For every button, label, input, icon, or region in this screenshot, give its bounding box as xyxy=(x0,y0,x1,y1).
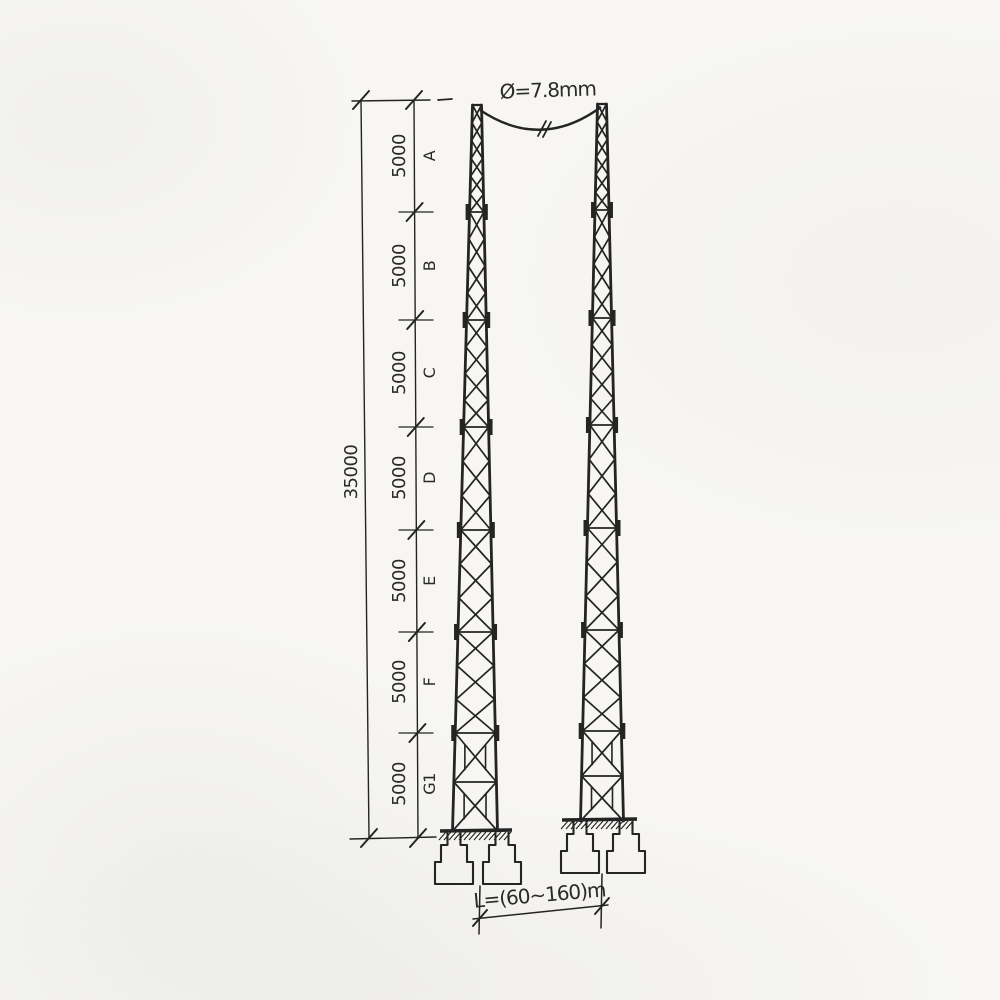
segment-name-label-c: C xyxy=(420,367,439,378)
total-height-label: 35000 xyxy=(341,445,362,500)
stepped-footing xyxy=(483,832,521,884)
segment-name-label-b: B xyxy=(420,261,439,271)
ground-hatch xyxy=(439,830,512,840)
segment-name-label-d: D xyxy=(420,472,439,484)
segment-length-label-b: 5000 xyxy=(389,244,410,288)
segment-name-label-a: A xyxy=(420,150,439,161)
scanned-drawing-page: Ø=7.8mm 35000 5000 5000 5000 5000 5000 5… xyxy=(0,0,1000,1000)
tower-elevation-drawing: Ø=7.8mm 35000 5000 5000 5000 5000 5000 5… xyxy=(0,0,1000,1000)
segment-length-label-e: 5000 xyxy=(389,559,410,603)
segment-length-label-c: 5000 xyxy=(389,351,410,395)
conductor-cable xyxy=(480,107,601,137)
segment-name-label-f: F xyxy=(420,677,439,686)
diagram-linework xyxy=(350,91,645,934)
segment-name-label-e: E xyxy=(420,576,439,586)
ground-hatch xyxy=(561,819,637,829)
segment-length-label-d: 5000 xyxy=(389,456,410,500)
segment-name-label-g1: G1 xyxy=(420,773,439,795)
segment-length-label-g1: 5000 xyxy=(389,762,410,806)
lattice-tower-right xyxy=(580,104,623,821)
segment-length-label-f: 5000 xyxy=(389,660,410,704)
segment-length-label-a: 5000 xyxy=(389,134,410,178)
conductor-diameter-label: Ø=7.8mm xyxy=(499,76,596,103)
lattice-tower-left xyxy=(453,105,498,831)
